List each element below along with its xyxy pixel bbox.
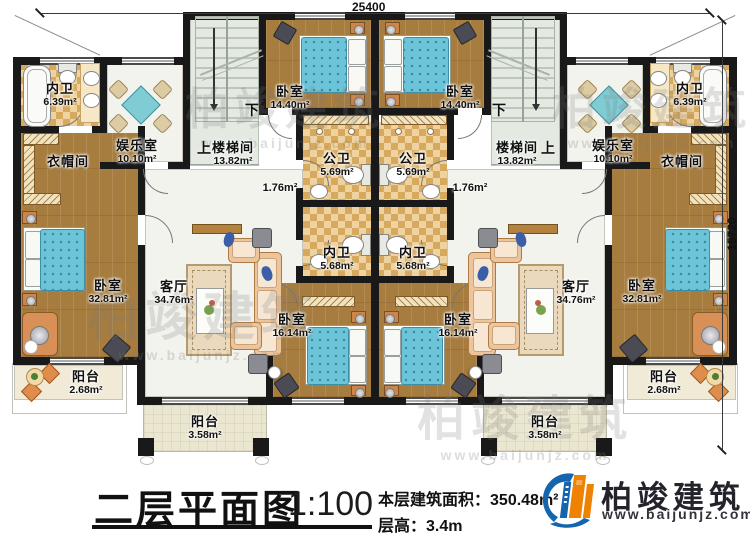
room-label-hall-right: 1.76m² xyxy=(453,182,488,195)
room-label-balcony-small-left: 阳台2.68m² xyxy=(69,370,102,396)
room-label-bedroom-mid-right: 卧室16.14m² xyxy=(438,313,477,339)
room-label-balcony-large-right: 阳台3.58m² xyxy=(528,415,561,441)
floor-area-label: 本层建筑面积： xyxy=(378,492,490,509)
room-label-balcony-small-right: 阳台2.68m² xyxy=(647,370,680,396)
dimension-right: 15720 xyxy=(725,214,739,254)
floor-height-value: 3.4m xyxy=(426,518,462,535)
watermark: 柏竣建筑www.baijunjz.com xyxy=(390,396,660,463)
brand-url: www.baijunjz.com xyxy=(602,506,750,522)
title-underline xyxy=(92,525,372,529)
room-label-bath-top-left: 内卫6.39m² xyxy=(43,82,76,108)
stairs-down-label: 下 xyxy=(245,100,259,120)
room-label-bedroom-top-right: 卧室14.40m² xyxy=(440,85,479,111)
room-label-bedroom-top-left: 卧室14.40m² xyxy=(270,85,309,111)
room-label-stairwell-left: 楼梯间13.82m² xyxy=(212,141,254,167)
brand-logo-icon xyxy=(540,468,598,530)
dimension-line xyxy=(40,13,710,14)
stairs-up-label: 上 xyxy=(541,138,555,158)
room-label-public-bath-left: 公卫5.69m² xyxy=(320,152,353,178)
room-label-cloakroom-left: 衣帽间 xyxy=(47,155,89,169)
room-label-bedroom-mid-left: 卧室16.14m² xyxy=(272,313,311,339)
floor-plan-sheet: 25400 15720 柏竣建筑www.baijunjz.com 柏竣建筑www… xyxy=(0,0,750,539)
room-label-bath-top-right: 内卫6.39m² xyxy=(673,82,706,108)
annotation-overlay: 25400 15720 柏竣建筑www.baijunjz.com 柏竣建筑www… xyxy=(0,0,750,539)
watermark: 柏竣建筑www.baijunjz.com xyxy=(552,88,750,151)
drawing-scale: 1:100 xyxy=(288,485,373,524)
room-label-living-left: 客厅34.76m² xyxy=(154,280,193,306)
floor-area-line: 本层建筑面积：350.48m² xyxy=(378,486,559,510)
floor-height-line: 层高：3.4m xyxy=(378,512,462,536)
room-label-stairwell-right: 楼梯间13.82m² xyxy=(496,141,538,167)
room-label-bath-mid-right: 内卫5.68m² xyxy=(396,246,429,272)
room-label-cloakroom-right: 衣帽间 xyxy=(661,155,703,169)
room-label-public-bath-right: 公卫5.69m² xyxy=(396,152,429,178)
room-label-living-right: 客厅34.76m² xyxy=(556,280,595,306)
room-label-bath-mid-left: 内卫5.68m² xyxy=(320,246,353,272)
room-label-entertainment-left: 娱乐室10.10m² xyxy=(116,139,158,165)
room-label-bedroom-big-left: 卧室32.81m² xyxy=(88,279,127,305)
stairs-down-label: 下 xyxy=(492,100,506,120)
dimension-top: 25400 xyxy=(352,0,385,14)
room-label-bedroom-big-right: 卧室32.81m² xyxy=(622,279,661,305)
floor-height-label: 层高： xyxy=(378,518,426,535)
room-label-balcony-large-left: 阳台3.58m² xyxy=(188,415,221,441)
room-label-entertainment-right: 娱乐室10.10m² xyxy=(592,139,634,165)
room-label-hall-left: 1.76m² xyxy=(263,182,298,195)
stairs-up-label: 上 xyxy=(197,138,211,158)
